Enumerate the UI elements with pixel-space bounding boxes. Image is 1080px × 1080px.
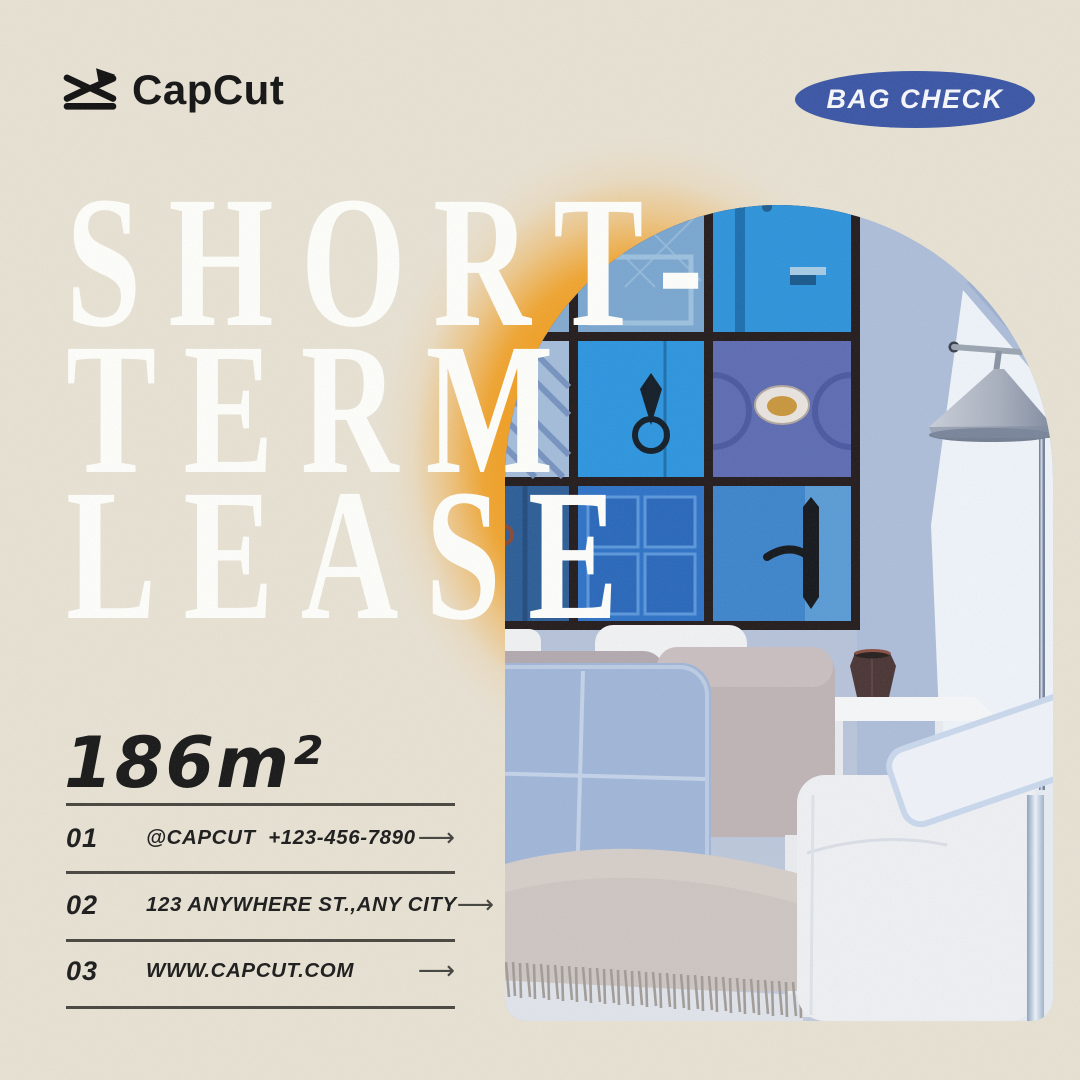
area-value: 186m²	[64, 722, 324, 804]
badge-label: BAG CHECK	[826, 84, 1003, 115]
row-index: 01	[66, 823, 146, 854]
bag-check-badge: BAG CHECK	[795, 71, 1035, 128]
capcut-logo-text: CapCut	[132, 66, 284, 114]
arrow-icon: ⟶	[418, 956, 455, 986]
contact-row-website: 03 WWW.CAPCUT.COM ⟶	[66, 949, 455, 993]
arrow-icon: ⟶	[418, 823, 455, 853]
row-index: 02	[66, 890, 146, 921]
capcut-logo: CapCut	[62, 66, 284, 114]
row-label: @CAPCUT +123-456-7890	[146, 826, 416, 850]
poster-canvas: SHORT- TERM LEASE CapCut BAG CHECK 186m²…	[0, 0, 1080, 1080]
row-label: WWW.CAPCUT.COM	[146, 959, 354, 983]
divider	[66, 939, 455, 942]
divider	[66, 871, 455, 874]
headline-line-3: LEASE	[66, 461, 645, 649]
divider	[66, 803, 455, 806]
capcut-logo-icon	[62, 67, 118, 113]
contact-row-phone: 01 @CAPCUT +123-456-7890 ⟶	[66, 816, 455, 860]
contact-row-address: 02 123 ANYWHERE ST.,ANY CITY ⟶	[66, 883, 455, 927]
row-index: 03	[66, 956, 146, 987]
divider	[66, 1006, 455, 1009]
row-label: 123 ANYWHERE ST.,ANY CITY	[146, 893, 457, 917]
arrow-icon: ⟶	[457, 890, 494, 920]
